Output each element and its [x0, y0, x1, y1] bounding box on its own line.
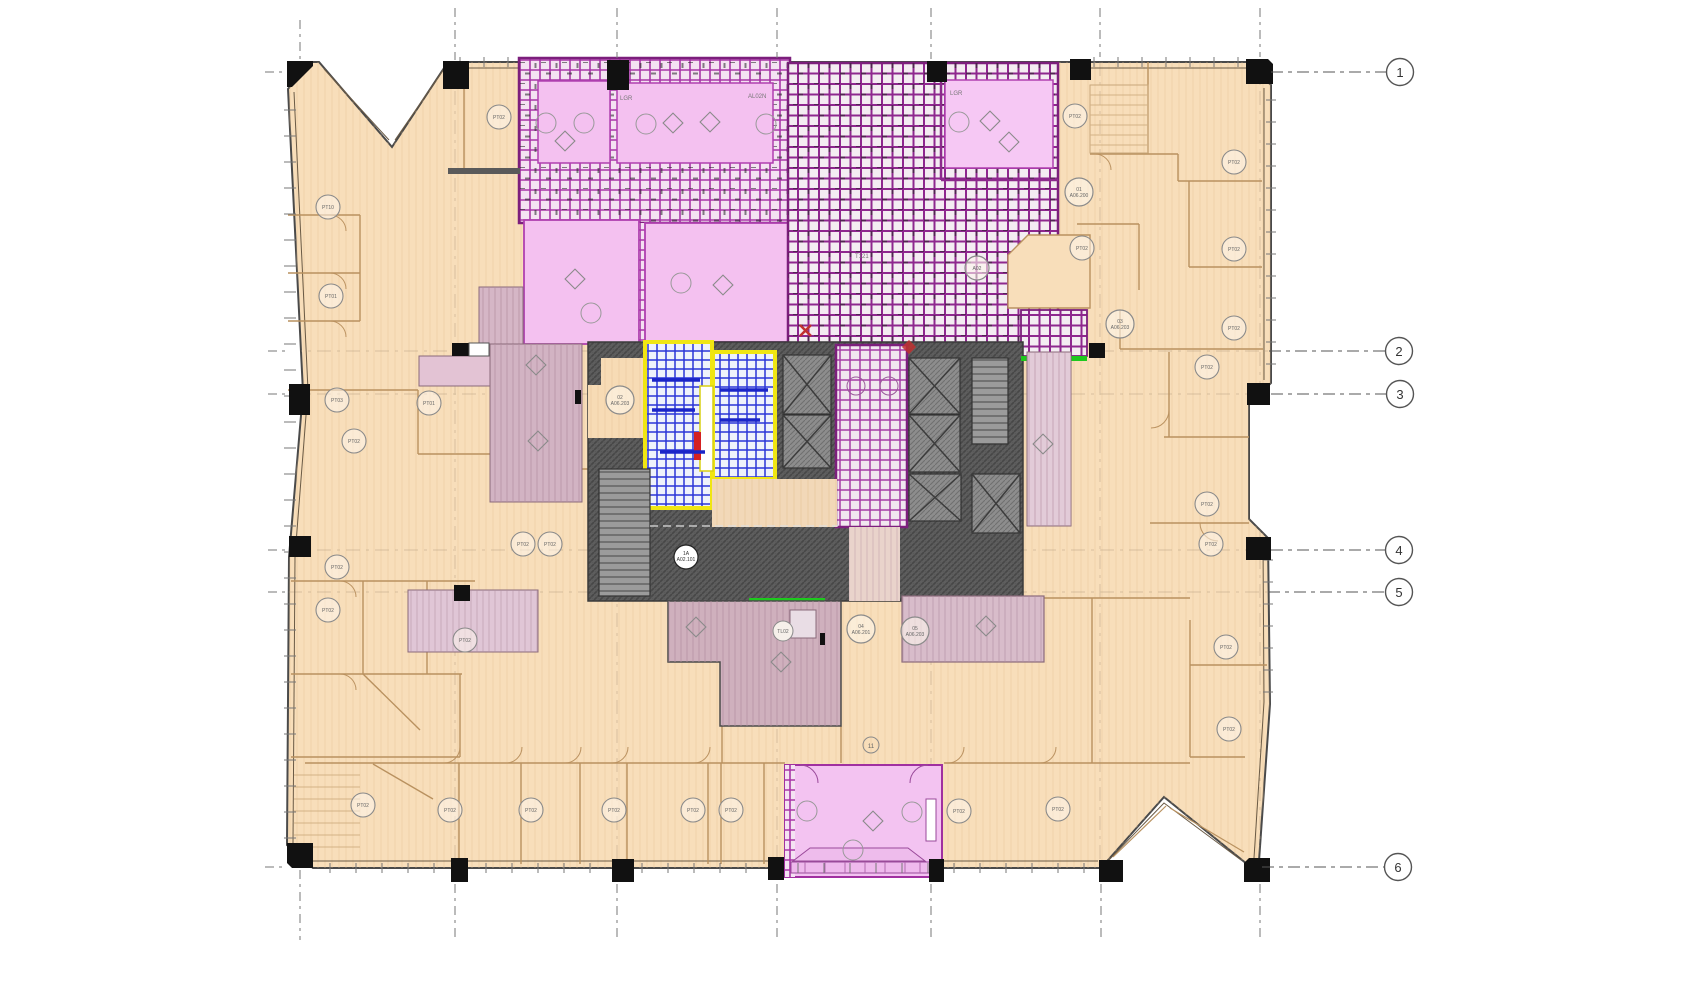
svg-text:TL02: TL02 — [777, 629, 789, 635]
svg-text:A02: A02 — [973, 266, 982, 272]
svg-text:PT03: PT03 — [331, 398, 343, 404]
svg-text:A06.201: A06.201 — [852, 630, 871, 636]
svg-text:PT02: PT02 — [1069, 114, 1081, 120]
svg-text:PT02: PT02 — [1201, 365, 1213, 371]
svg-text:1: 1 — [1396, 65, 1403, 80]
svg-text:PT02: PT02 — [1076, 246, 1088, 252]
svg-text:PT02: PT02 — [348, 439, 360, 445]
svg-text:A06.203: A06.203 — [611, 401, 630, 407]
svg-text:PT02: PT02 — [1220, 645, 1232, 651]
svg-text:A06.203: A06.203 — [906, 632, 925, 638]
svg-text:5: 5 — [1395, 585, 1402, 600]
svg-text:PT02: PT02 — [1223, 727, 1235, 733]
svg-text:PT02: PT02 — [357, 803, 369, 809]
svg-text:AL02N: AL02N — [748, 94, 766, 100]
svg-text:PT02: PT02 — [525, 808, 537, 814]
svg-text:PT02: PT02 — [322, 608, 334, 614]
svg-text:PT02: PT02 — [687, 808, 699, 814]
svg-text:PT02: PT02 — [1228, 326, 1240, 332]
svg-text:PT02: PT02 — [459, 638, 471, 644]
svg-text:PT02: PT02 — [517, 542, 529, 548]
svg-text:T121: T121 — [855, 254, 869, 260]
svg-text:PT02: PT02 — [608, 808, 620, 814]
svg-text:PT02: PT02 — [493, 115, 505, 121]
svg-text:PT02: PT02 — [1201, 502, 1213, 508]
svg-text:PT02: PT02 — [1052, 807, 1064, 813]
svg-text:A02.101: A02.101 — [677, 557, 696, 563]
svg-text:11: 11 — [868, 744, 875, 750]
svg-text:PT02: PT02 — [331, 565, 343, 571]
svg-text:PT02: PT02 — [725, 808, 737, 814]
svg-text:PT02: PT02 — [953, 809, 965, 815]
svg-text:A06.203: A06.203 — [1111, 325, 1130, 331]
svg-text:PT01: PT01 — [325, 294, 337, 300]
svg-text:6: 6 — [1394, 860, 1401, 875]
svg-text:PT01: PT01 — [423, 401, 435, 407]
svg-text:PT02: PT02 — [1228, 160, 1240, 166]
svg-text:A06.200: A06.200 — [1070, 193, 1089, 199]
svg-text:PT10: PT10 — [322, 205, 334, 211]
svg-text:3: 3 — [1396, 387, 1403, 402]
svg-text:PT02: PT02 — [1228, 247, 1240, 253]
svg-text:PT02: PT02 — [1205, 542, 1217, 548]
svg-text:4: 4 — [1395, 543, 1402, 558]
svg-text:PT02: PT02 — [544, 542, 556, 548]
svg-text:2: 2 — [1395, 344, 1402, 359]
svg-text:LGR: LGR — [950, 91, 963, 97]
svg-text:PT02: PT02 — [444, 808, 456, 814]
svg-text:LGR: LGR — [620, 96, 633, 102]
